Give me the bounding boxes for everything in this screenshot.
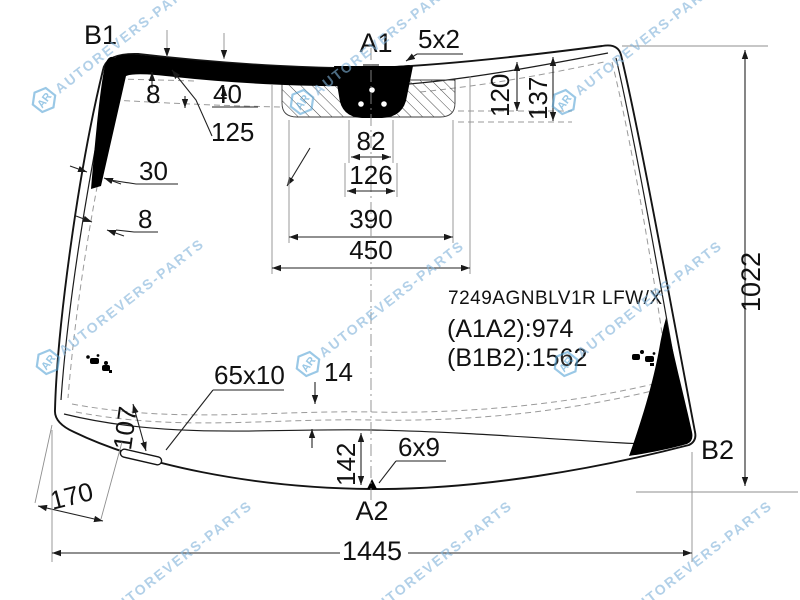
dim-band-width: 40 (213, 79, 242, 109)
dim-left-offset: 8 (138, 204, 152, 234)
dim-height: 1022 (736, 252, 766, 312)
drawing-canvas: 8 40 125 5x2 120 137 82 126 390 450 30 8… (0, 0, 800, 600)
bracket-hole (358, 101, 364, 107)
windshield-technical-drawing: 8 40 125 5x2 120 137 82 126 390 450 30 8… (0, 0, 800, 600)
spec-a1a2: (A1A2):974 (447, 315, 574, 343)
dim-left-band: 30 (139, 156, 168, 186)
leader-5x2 (406, 54, 417, 61)
dim-top-edge-offset: 8 (146, 79, 160, 109)
dim-bottom-gap: 14 (324, 357, 353, 387)
ext-line (101, 442, 122, 519)
dim-slot-offset: 107 (107, 405, 143, 452)
dim-sensor-w1: 126 (349, 160, 392, 190)
dim-a1-notch: 5x2 (418, 24, 460, 54)
bracket-hole (381, 101, 387, 107)
label-a2: A2 (355, 496, 388, 526)
watermark-text: AUTOREVERS-PARTS (104, 497, 256, 600)
dim-bracket-w: 82 (357, 126, 386, 156)
dim-a2-hole: 6x9 (398, 432, 440, 462)
dim-a2-offset: 142 (331, 443, 361, 486)
dim-sensor-w3: 450 (349, 235, 392, 265)
dim-width: 1445 (342, 536, 402, 566)
watermark: AR AUTOREVERS-PARTS (597, 492, 779, 600)
dim-corner-diag: 170 (47, 476, 96, 516)
dim-sensor-h1: 120 (485, 74, 515, 117)
label-b2: B2 (701, 435, 734, 465)
dim-slot: 65x10 (214, 360, 285, 390)
dim-sensor-w2: 390 (349, 204, 392, 234)
dim-sensor-h2: 137 (523, 77, 553, 120)
dim-band-length: 125 (211, 117, 254, 147)
watermark-text: AUTOREVERS-PARTS (624, 497, 776, 600)
bracket-hole (369, 87, 375, 93)
